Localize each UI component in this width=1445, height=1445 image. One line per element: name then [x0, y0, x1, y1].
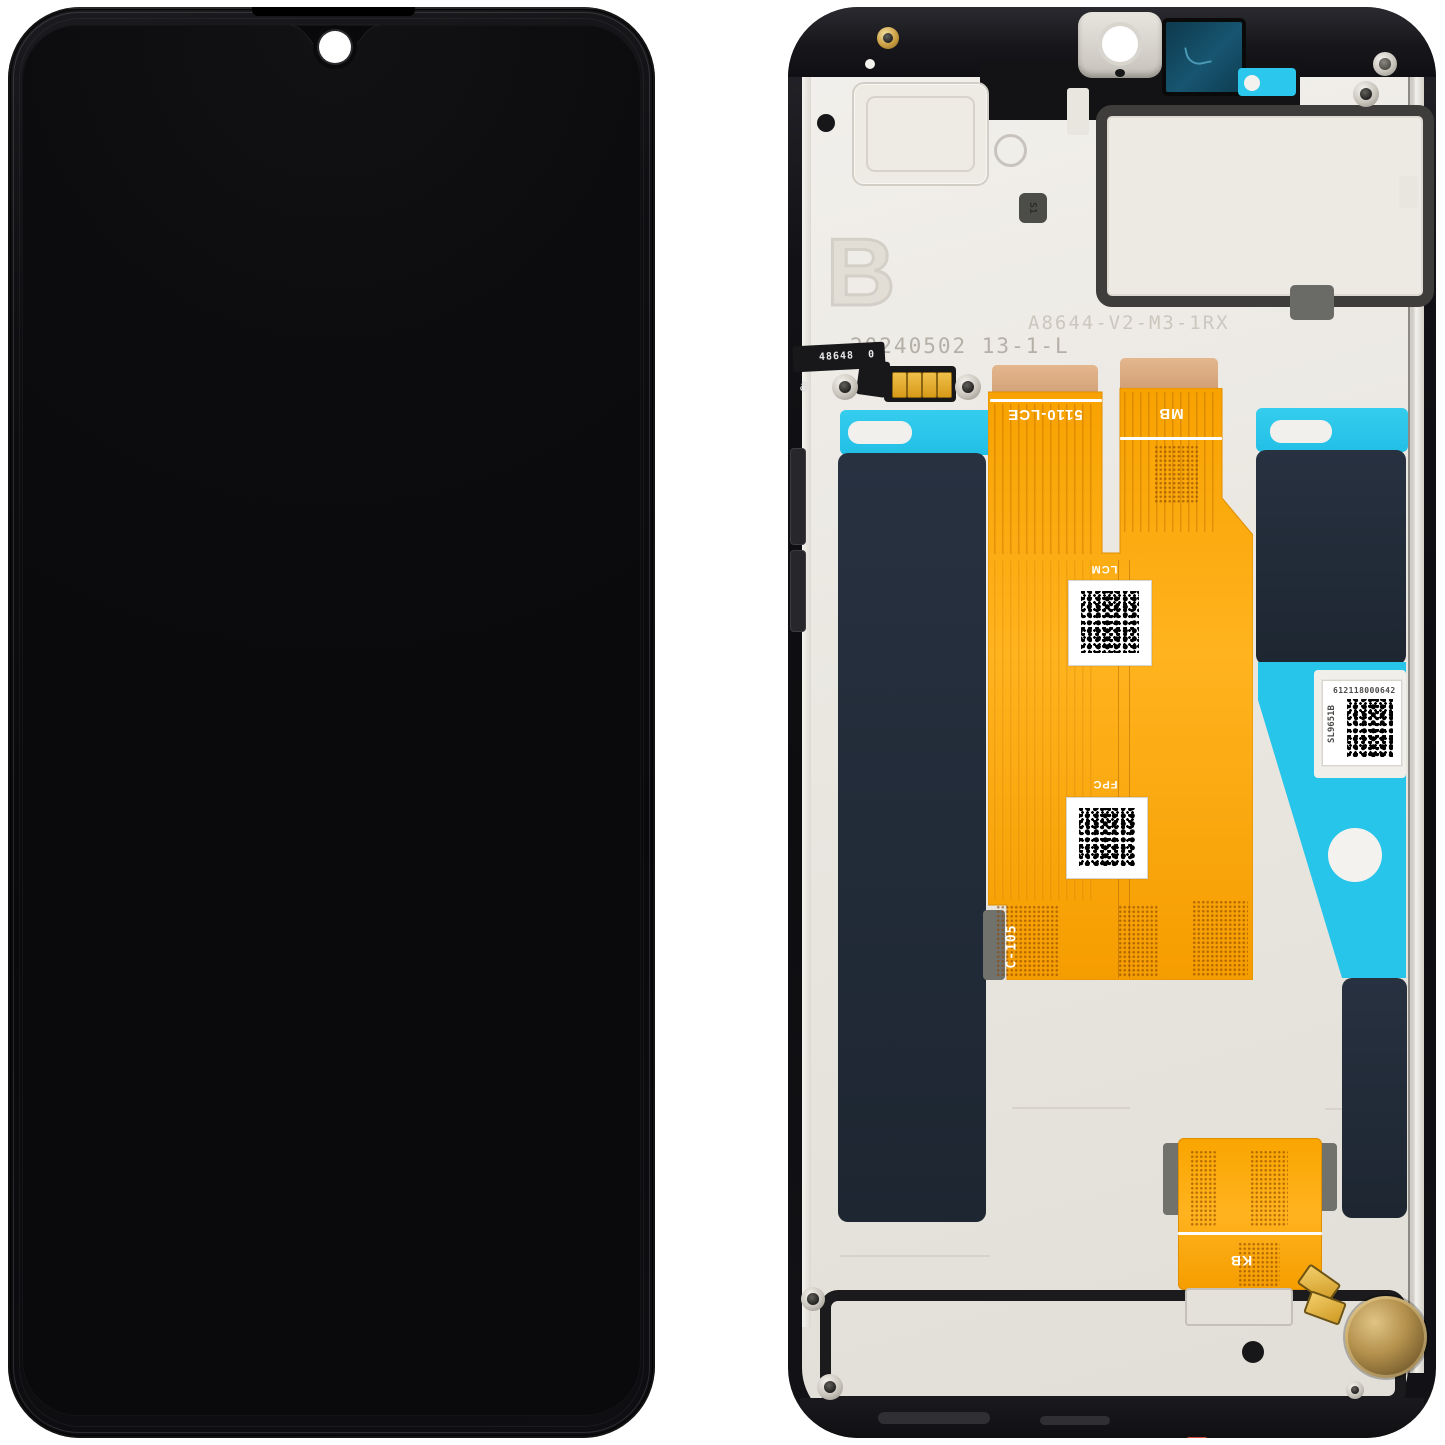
front-camera-dot	[319, 31, 351, 63]
mainboard-recess-outline	[1096, 105, 1434, 307]
flex-hatch-3	[1118, 905, 1158, 977]
copper-stiffener-right	[1120, 358, 1218, 392]
qr-sticker-fpc	[1066, 797, 1148, 879]
foam-patch	[1290, 285, 1334, 320]
plate-seam-1	[1012, 1107, 1130, 1109]
display-assembly-rear-view: B A8644-V2-M3-1RX 20240502 13-1-L S1 486…	[788, 7, 1436, 1438]
gold-contact-3	[922, 372, 937, 398]
bracket-notch	[1115, 69, 1125, 77]
flex-traces-left	[994, 404, 1098, 554]
flex-white-line-left	[990, 399, 1102, 402]
graphite-pad-right-top	[1256, 450, 1406, 665]
screw-dot-small	[865, 59, 875, 69]
flex-white-line-right	[1120, 437, 1222, 440]
gold-contact-2	[907, 372, 922, 398]
qr-sticker-lcm	[1068, 580, 1152, 666]
flex-vertical-code: C-105	[1005, 915, 1020, 979]
adhesive-slot-right	[1270, 420, 1332, 443]
gold-contact-4	[937, 372, 952, 398]
red-seal-bit	[1186, 1437, 1208, 1438]
bolt-bottom-center	[1242, 1341, 1264, 1363]
gold-contact-1	[892, 372, 907, 398]
rail-tab	[1399, 176, 1418, 208]
screw-gold-topleft	[877, 27, 899, 49]
flex-label-fpc: FPC	[1077, 778, 1133, 790]
product-photo-lcd-assembly: B A8644-V2-M3-1RX 20240502 13-1-L S1 486…	[0, 0, 1445, 1445]
side-button-flex-2	[790, 550, 806, 632]
flex-label-main-left: 5110-LCE	[992, 406, 1098, 423]
camera-hole	[1102, 26, 1138, 62]
flex-label-kb: KB	[1211, 1253, 1271, 1269]
left-rail	[802, 77, 811, 1327]
frame-hole-topleft	[817, 114, 835, 132]
adhesive-tab-hole	[1244, 75, 1260, 91]
screw-bottom-right	[1346, 1381, 1364, 1399]
screw-bottom-left-2	[817, 1374, 843, 1400]
screw-mid-right	[955, 374, 981, 400]
flex-vertical-code-wrap: C-105	[1002, 907, 1022, 987]
flex-label-lcm: LCM	[1076, 563, 1132, 575]
kb-hatch-1	[1190, 1150, 1216, 1226]
graphite-pad-right-bottom	[1342, 978, 1407, 1218]
graphite-pad-left	[838, 453, 986, 1222]
stamp-s1-blob: S1	[1019, 193, 1047, 223]
speaker-slot-1	[878, 1412, 990, 1424]
phone-screen-off	[22, 25, 641, 1416]
datamatrix-sticker	[1347, 699, 1393, 757]
flex-hatch-1	[1154, 445, 1198, 503]
flex-label-main-right: MB	[1124, 405, 1218, 422]
serial-sticker: 612118000642 SL9651B	[1322, 680, 1402, 766]
screw-boss-ring	[994, 134, 1027, 167]
datamatrix-lcm	[1081, 591, 1139, 653]
screw-bottom-left-1	[801, 1287, 825, 1311]
flex-hatch-4	[1192, 900, 1248, 976]
phone-front-view	[8, 7, 655, 1438]
adhesive-circle-hole	[1328, 828, 1382, 882]
screw-topright-2	[1353, 81, 1379, 107]
kb-hatch-2	[1250, 1150, 1288, 1226]
adhesive-slot-left	[848, 421, 912, 444]
earpiece-slot	[252, 7, 415, 16]
camera-module-recess-inner	[866, 96, 975, 172]
vibration-motor	[1345, 1296, 1427, 1378]
plate-tab	[1067, 88, 1089, 135]
kb-white-line	[1178, 1232, 1322, 1235]
sticker-code-text: SL9651B	[1327, 699, 1337, 749]
stamp-model-code: A8644-V2-M3-1RX	[1028, 312, 1230, 334]
screw-mid-left	[832, 374, 858, 400]
screw-topright-1	[1373, 52, 1397, 76]
plate-seam-3	[840, 1255, 990, 1257]
stamp-letter-b: B	[826, 225, 895, 321]
serial-number-text: 612118000642	[1333, 686, 1396, 695]
speaker-slot-2	[1040, 1416, 1110, 1425]
kb-connector-plate	[1185, 1288, 1293, 1326]
side-button-flex-1	[790, 448, 806, 545]
datamatrix-fpc	[1079, 808, 1135, 866]
